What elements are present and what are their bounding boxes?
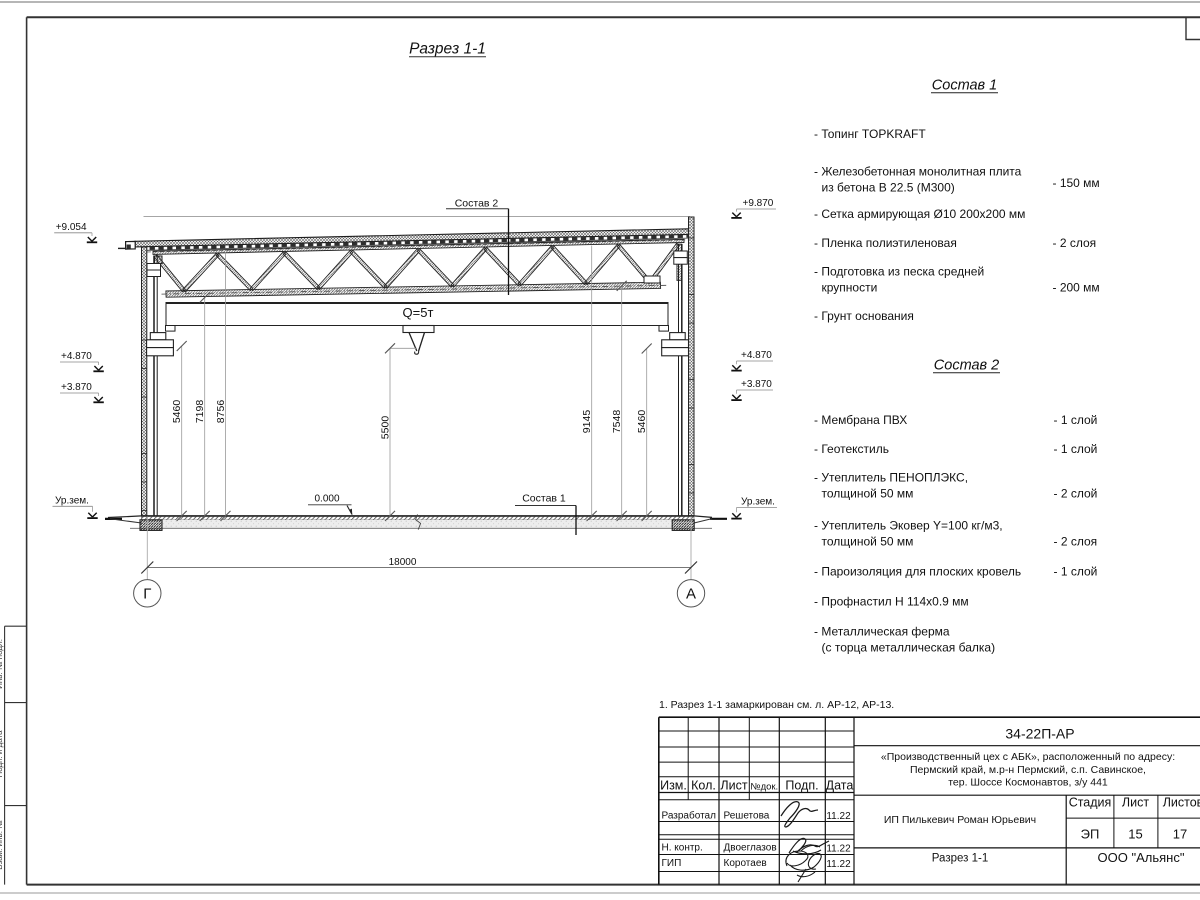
svg-text:Разрез 1-1: Разрез 1-1 xyxy=(932,853,988,865)
svg-text:5460: 5460 xyxy=(171,400,183,424)
svg-text:- Сетка армирующая Ø10 200x200: - Сетка армирующая Ø10 200x200 мм xyxy=(814,207,1025,221)
svg-text:11.22: 11.22 xyxy=(826,859,851,870)
svg-text:из бетона В 22.5 (М300): из бетона В 22.5 (М300) xyxy=(822,181,955,195)
svg-text:Состав 1: Состав 1 xyxy=(522,493,566,505)
svg-text:7548: 7548 xyxy=(611,410,623,434)
svg-text:- Железобетонная монолитная п: - Железобетонная монолитная плита xyxy=(814,165,1022,179)
svg-text:+3.870: +3.870 xyxy=(61,382,92,393)
svg-text:толщиной 50 мм: толщиной 50 мм xyxy=(822,535,914,549)
svg-text:- 2 слоя: - 2 слоя xyxy=(1053,236,1097,250)
svg-text:- 200 мм: - 200 мм xyxy=(1053,281,1100,295)
svg-text:- 1 слой: - 1 слой xyxy=(1054,565,1098,579)
svg-text:- Подготовка из песка средней: - Подготовка из песка средней xyxy=(814,265,984,279)
svg-text:Состав 2: Состав 2 xyxy=(934,358,999,374)
svg-text:8756: 8756 xyxy=(215,400,227,424)
svg-text:1. Разрез 1-1 замаркирован см.: 1. Разрез 1-1 замаркирован см. л. АР-12,… xyxy=(659,699,894,711)
svg-text:Взам. инв. №: Взам. инв. № xyxy=(0,820,4,870)
svg-text:тер. Шоссе Космонавтов, з/у 44: тер. Шоссе Космонавтов, з/у 441 xyxy=(948,776,1108,788)
svg-text:+9.870: +9.870 xyxy=(743,198,774,209)
svg-text:+4.870: +4.870 xyxy=(741,350,772,361)
svg-text:Разрез 1-1: Разрез 1-1 xyxy=(409,41,486,58)
svg-text:+9.054: +9.054 xyxy=(56,222,87,233)
svg-text:- 2 слой: - 2 слой xyxy=(1054,487,1098,501)
svg-text:ГИП: ГИП xyxy=(662,858,682,869)
svg-text:- Пленка полиэтиленовая: - Пленка полиэтиленовая xyxy=(814,236,957,250)
svg-text:ЭП: ЭП xyxy=(1081,827,1100,842)
svg-text:- Геотекстиль: - Геотекстиль xyxy=(814,442,889,456)
svg-text:- Профнастил Н 114x0.9 мм: - Профнастил Н 114x0.9 мм xyxy=(814,595,969,609)
svg-text:- 1 слой: - 1 слой xyxy=(1054,442,1098,456)
svg-text:ООО "Альянс": ООО "Альянс" xyxy=(1098,850,1185,865)
svg-text:11.22: 11.22 xyxy=(826,811,851,822)
svg-text:Подп. и дата: Подп. и дата xyxy=(0,730,4,778)
svg-text:0.000: 0.000 xyxy=(314,494,339,505)
svg-text:- Утеплитель ПЕНОПЛЭКС,: - Утеплитель ПЕНОПЛЭКС, xyxy=(814,471,968,485)
svg-text:Кол.: Кол. xyxy=(691,778,716,792)
svg-text:- Металлическая ферма: - Металлическая ферма xyxy=(814,625,950,639)
svg-text:34-22П-АР: 34-22П-АР xyxy=(1005,726,1074,742)
svg-text:- 2 слоя: - 2 слоя xyxy=(1054,535,1098,549)
svg-text:Инв. № подл.: Инв. № подл. xyxy=(0,639,4,689)
svg-text:17: 17 xyxy=(1173,827,1187,842)
svg-text:Подп.: Подп. xyxy=(785,778,818,792)
svg-text:Лист: Лист xyxy=(720,778,747,792)
svg-text:Дата: Дата xyxy=(826,778,854,792)
svg-text:Лист: Лист xyxy=(1122,796,1149,810)
svg-text:Разработал: Разработал xyxy=(662,810,717,822)
svg-text:крупности: крупности xyxy=(822,281,878,295)
svg-text:Q=5т: Q=5т xyxy=(403,305,434,320)
svg-text:толщиной 50 мм: толщиной 50 мм xyxy=(822,487,914,501)
svg-text:ИП Пилькевич Роман Юрьевич: ИП Пилькевич Роман Юрьевич xyxy=(884,814,1036,826)
svg-text:- 150 мм: - 150 мм xyxy=(1053,176,1100,190)
svg-text:№док.: №док. xyxy=(750,782,778,793)
svg-text:9145: 9145 xyxy=(581,410,593,434)
svg-text:- Пароизоляция для плоских кро: - Пароизоляция для плоских кровель xyxy=(814,565,1021,579)
svg-text:Н. контр.: Н. контр. xyxy=(662,843,703,854)
svg-text:Листов: Листов xyxy=(1163,796,1200,810)
svg-text:- Утеплитель Эковер Y=100 кг/м: - Утеплитель Эковер Y=100 кг/м3, xyxy=(814,519,1003,533)
svg-text:А: А xyxy=(686,586,696,603)
svg-text:+4.870: +4.870 xyxy=(61,351,92,362)
svg-text:Коротаев: Коротаев xyxy=(724,858,767,869)
svg-text:Стадия: Стадия xyxy=(1069,796,1112,810)
svg-text:Изм.: Изм. xyxy=(660,778,687,792)
svg-text:- Топинг TOPKRAFT: - Топинг TOPKRAFT xyxy=(814,127,926,141)
svg-text:Решетова: Решетова xyxy=(724,811,770,822)
svg-text:11.22: 11.22 xyxy=(826,843,851,854)
svg-text:- Мембрана ПВХ: - Мембрана ПВХ xyxy=(814,413,907,427)
svg-text:Пермский край, м.р-н Пермский,: Пермский край, м.р-н Пермский, с.п. Сави… xyxy=(910,764,1146,776)
svg-text:7198: 7198 xyxy=(194,400,206,424)
svg-text:15: 15 xyxy=(1128,827,1142,842)
svg-text:- 1 слой: - 1 слой xyxy=(1054,413,1098,427)
svg-text:18000: 18000 xyxy=(389,557,417,568)
svg-text:5460: 5460 xyxy=(636,410,648,434)
svg-text:- Грунт основания: - Грунт основания xyxy=(814,309,914,323)
svg-text:5500: 5500 xyxy=(380,416,392,440)
svg-text:Г: Г xyxy=(143,586,151,603)
svg-text:Двоеглазов: Двоеглазов xyxy=(724,843,777,854)
svg-text:«Производственный цех с АБК»,: «Производственный цех с АБК», расположен… xyxy=(881,751,1175,763)
svg-text:(с торца металлическая балка): (с торца металлическая балка) xyxy=(822,641,996,655)
svg-text:+3.870: +3.870 xyxy=(741,379,772,390)
svg-text:Ур.зем.: Ур.зем. xyxy=(55,495,89,506)
svg-text:Ур.зем.: Ур.зем. xyxy=(741,497,775,508)
svg-text:Состав 1: Состав 1 xyxy=(932,78,997,94)
svg-text:Состав 2: Состав 2 xyxy=(455,197,499,209)
